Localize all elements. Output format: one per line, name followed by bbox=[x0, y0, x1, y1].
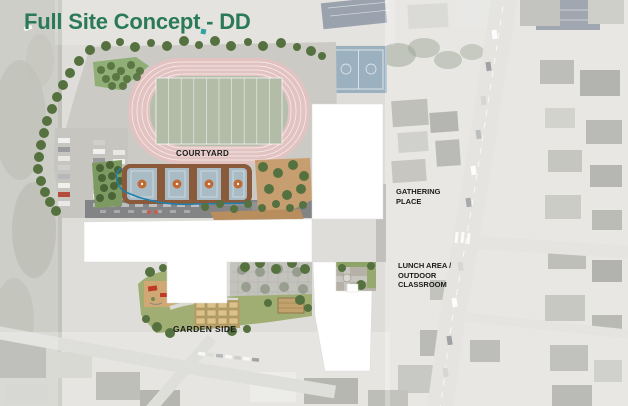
label-lunch-area: LUNCH AREA / OUTDOOR CLASSROOM bbox=[398, 261, 451, 290]
massing-north-wing bbox=[312, 104, 383, 219]
label-garden-side: GARDEN SIDE bbox=[173, 325, 236, 335]
west-courtyard-grove bbox=[92, 160, 124, 208]
label-gathering-place: GATHERING PLACE bbox=[396, 187, 440, 206]
label-courtyard: COURTYARD bbox=[176, 149, 229, 159]
page-title: Full Site Concept - DD bbox=[24, 9, 251, 35]
sports-field bbox=[156, 78, 282, 144]
site-plan-graphic bbox=[0, 0, 628, 406]
courtyard-basketball-courts bbox=[117, 164, 253, 204]
massing-stair-tab bbox=[347, 284, 358, 292]
site-plan-slide: Full Site Concept - DD COURTYARD GATHERI… bbox=[0, 0, 628, 406]
round-table bbox=[343, 274, 351, 282]
